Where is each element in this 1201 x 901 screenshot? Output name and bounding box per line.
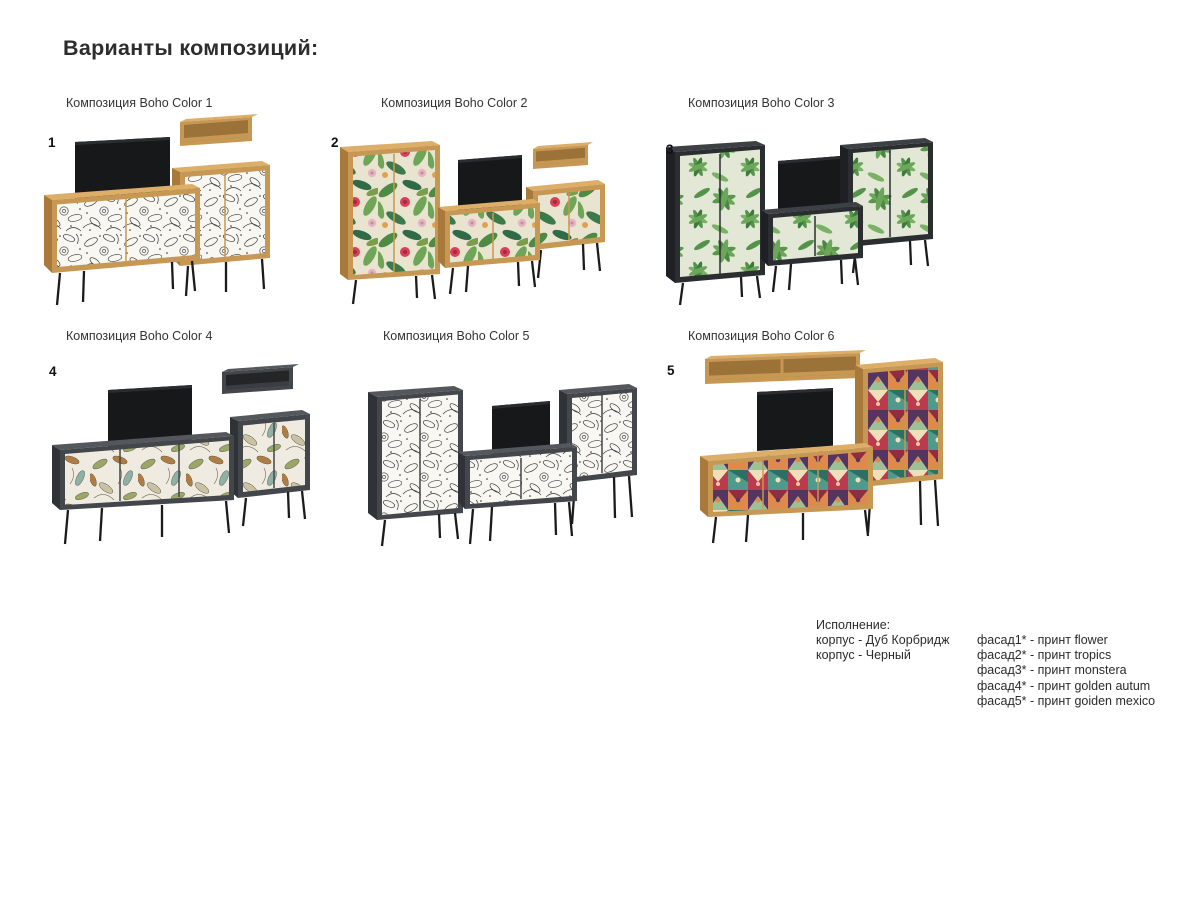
composition-4-preview bbox=[42, 358, 327, 558]
composition-1-preview bbox=[42, 112, 322, 312]
chest-graphic bbox=[230, 410, 310, 526]
composition-label-6: Композиция Boho Color 6 bbox=[688, 329, 834, 343]
composition-5-preview bbox=[362, 378, 652, 558]
composition-label-5: Композиция Boho Color 5 bbox=[383, 329, 529, 343]
legend-body-line-2: корпус - Черный bbox=[816, 648, 949, 663]
sideboard-graphic bbox=[458, 443, 577, 544]
legend-facade-line-5: фасад5* - принт goiden mexico bbox=[977, 694, 1155, 709]
wall-shelf-graphic bbox=[180, 114, 258, 146]
legend-title: Исполнение: bbox=[816, 618, 949, 633]
composition-number-1: 1 bbox=[48, 135, 56, 150]
wall-shelf-graphic bbox=[533, 142, 593, 169]
tall-cabinet-left-graphic bbox=[666, 141, 765, 305]
legend-facade-line-4: фасад4* - принт golden autum bbox=[977, 679, 1155, 694]
legend-facade-line-1: фасад1* - принт flower bbox=[977, 633, 1155, 648]
page-title: Варианты композиций: bbox=[63, 36, 318, 61]
composition-label-3: Композиция Boho Color 3 bbox=[688, 96, 834, 110]
composition-3-preview bbox=[658, 133, 948, 313]
composition-label-4: Композиция Boho Color 4 bbox=[66, 329, 212, 343]
composition-number-4: 4 bbox=[49, 364, 57, 379]
composition-number-6: 5 bbox=[667, 363, 675, 378]
composition-number-2: 2 bbox=[331, 135, 339, 150]
composition-2-preview bbox=[328, 128, 623, 318]
composition-6-preview bbox=[668, 350, 958, 550]
chest-legs bbox=[186, 259, 264, 296]
legend-facades: фасад1* - принт flower фасад2* - принт t… bbox=[977, 633, 1155, 709]
composition-number-3: 3 bbox=[666, 142, 674, 157]
sideboard-graphic bbox=[52, 432, 234, 544]
legend-body-line-1: корпус - Дуб Корбридж bbox=[816, 633, 949, 648]
legend-facade-line-3: фасад3* - принт monstera bbox=[977, 663, 1155, 678]
wall-shelf-graphic bbox=[705, 350, 866, 384]
composition-label-2: Композиция Boho Color 2 bbox=[381, 96, 527, 110]
tall-cabinet-graphic bbox=[340, 141, 440, 304]
composition-label-1: Композиция Boho Color 1 bbox=[66, 96, 212, 110]
legend-facade-line-2: фасад2* - принт tropics bbox=[977, 648, 1155, 663]
sideboard-graphic bbox=[438, 199, 540, 294]
sideboard-graphic bbox=[761, 202, 863, 292]
sideboard-graphic bbox=[700, 443, 873, 543]
sideboard-graphic bbox=[44, 184, 200, 305]
wall-shelf-graphic bbox=[222, 364, 299, 394]
tall-cabinet-left-graphic bbox=[368, 386, 463, 546]
legend-execution: Исполнение: корпус - Дуб Корбридж корпус… bbox=[816, 618, 949, 664]
